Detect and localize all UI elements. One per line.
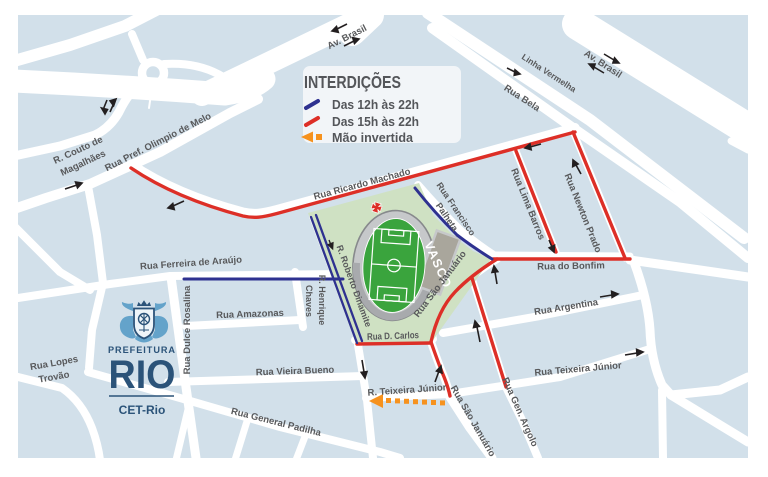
svg-text:Das 15h às 22h: Das 15h às 22h xyxy=(332,114,419,129)
svg-text:R. Henrique: R. Henrique xyxy=(317,275,327,326)
svg-text:CET-Rio: CET-Rio xyxy=(119,403,166,417)
svg-text:Mão invertida: Mão invertida xyxy=(332,130,414,145)
svg-text:Chaves: Chaves xyxy=(304,285,314,317)
svg-text:RIO: RIO xyxy=(109,353,176,397)
svg-text:Das 12h às 22h: Das 12h às 22h xyxy=(332,97,419,112)
svg-text:INTERDIÇÕES: INTERDIÇÕES xyxy=(304,71,401,92)
svg-text:Rua do Bonfim: Rua do Bonfim xyxy=(537,260,605,272)
svg-text:Rua Dulce Rosalina: Rua Dulce Rosalina xyxy=(182,285,193,374)
svg-text:Rua D. Carlos: Rua D. Carlos xyxy=(367,330,419,343)
